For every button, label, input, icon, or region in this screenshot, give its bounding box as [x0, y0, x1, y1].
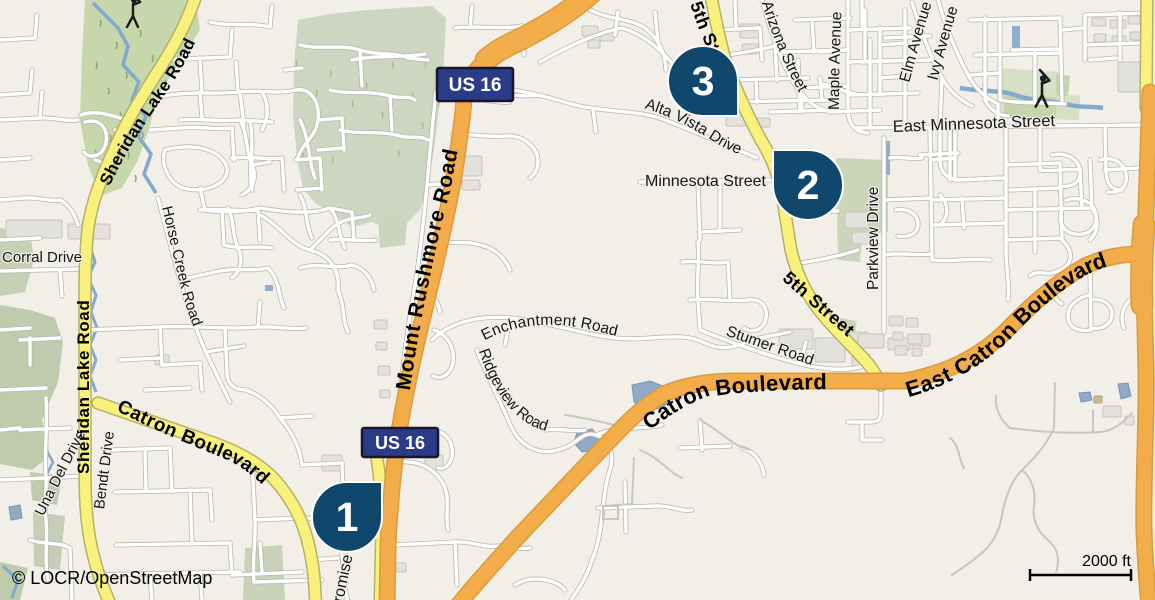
svg-text:1: 1 [336, 494, 359, 540]
svg-text:Parkview Drive: Parkview Drive [865, 187, 882, 290]
svg-text:US 16: US 16 [375, 433, 425, 453]
svg-text:Sheridan Lake Road: Sheridan Lake Road [74, 300, 93, 474]
svg-text:US 16: US 16 [449, 75, 502, 96]
svg-text:3: 3 [692, 58, 715, 104]
svg-text:Minnesota Street: Minnesota Street [645, 173, 767, 190]
svg-text:2000 ft: 2000 ft [1082, 553, 1131, 570]
svg-text:2: 2 [797, 162, 820, 208]
svg-text:Corral Drive: Corral Drive [2, 249, 82, 266]
svg-text:© LOCR/OpenStreetMap: © LOCR/OpenStreetMap [12, 568, 212, 588]
svg-text:Maple Avenue: Maple Avenue [826, 11, 846, 110]
